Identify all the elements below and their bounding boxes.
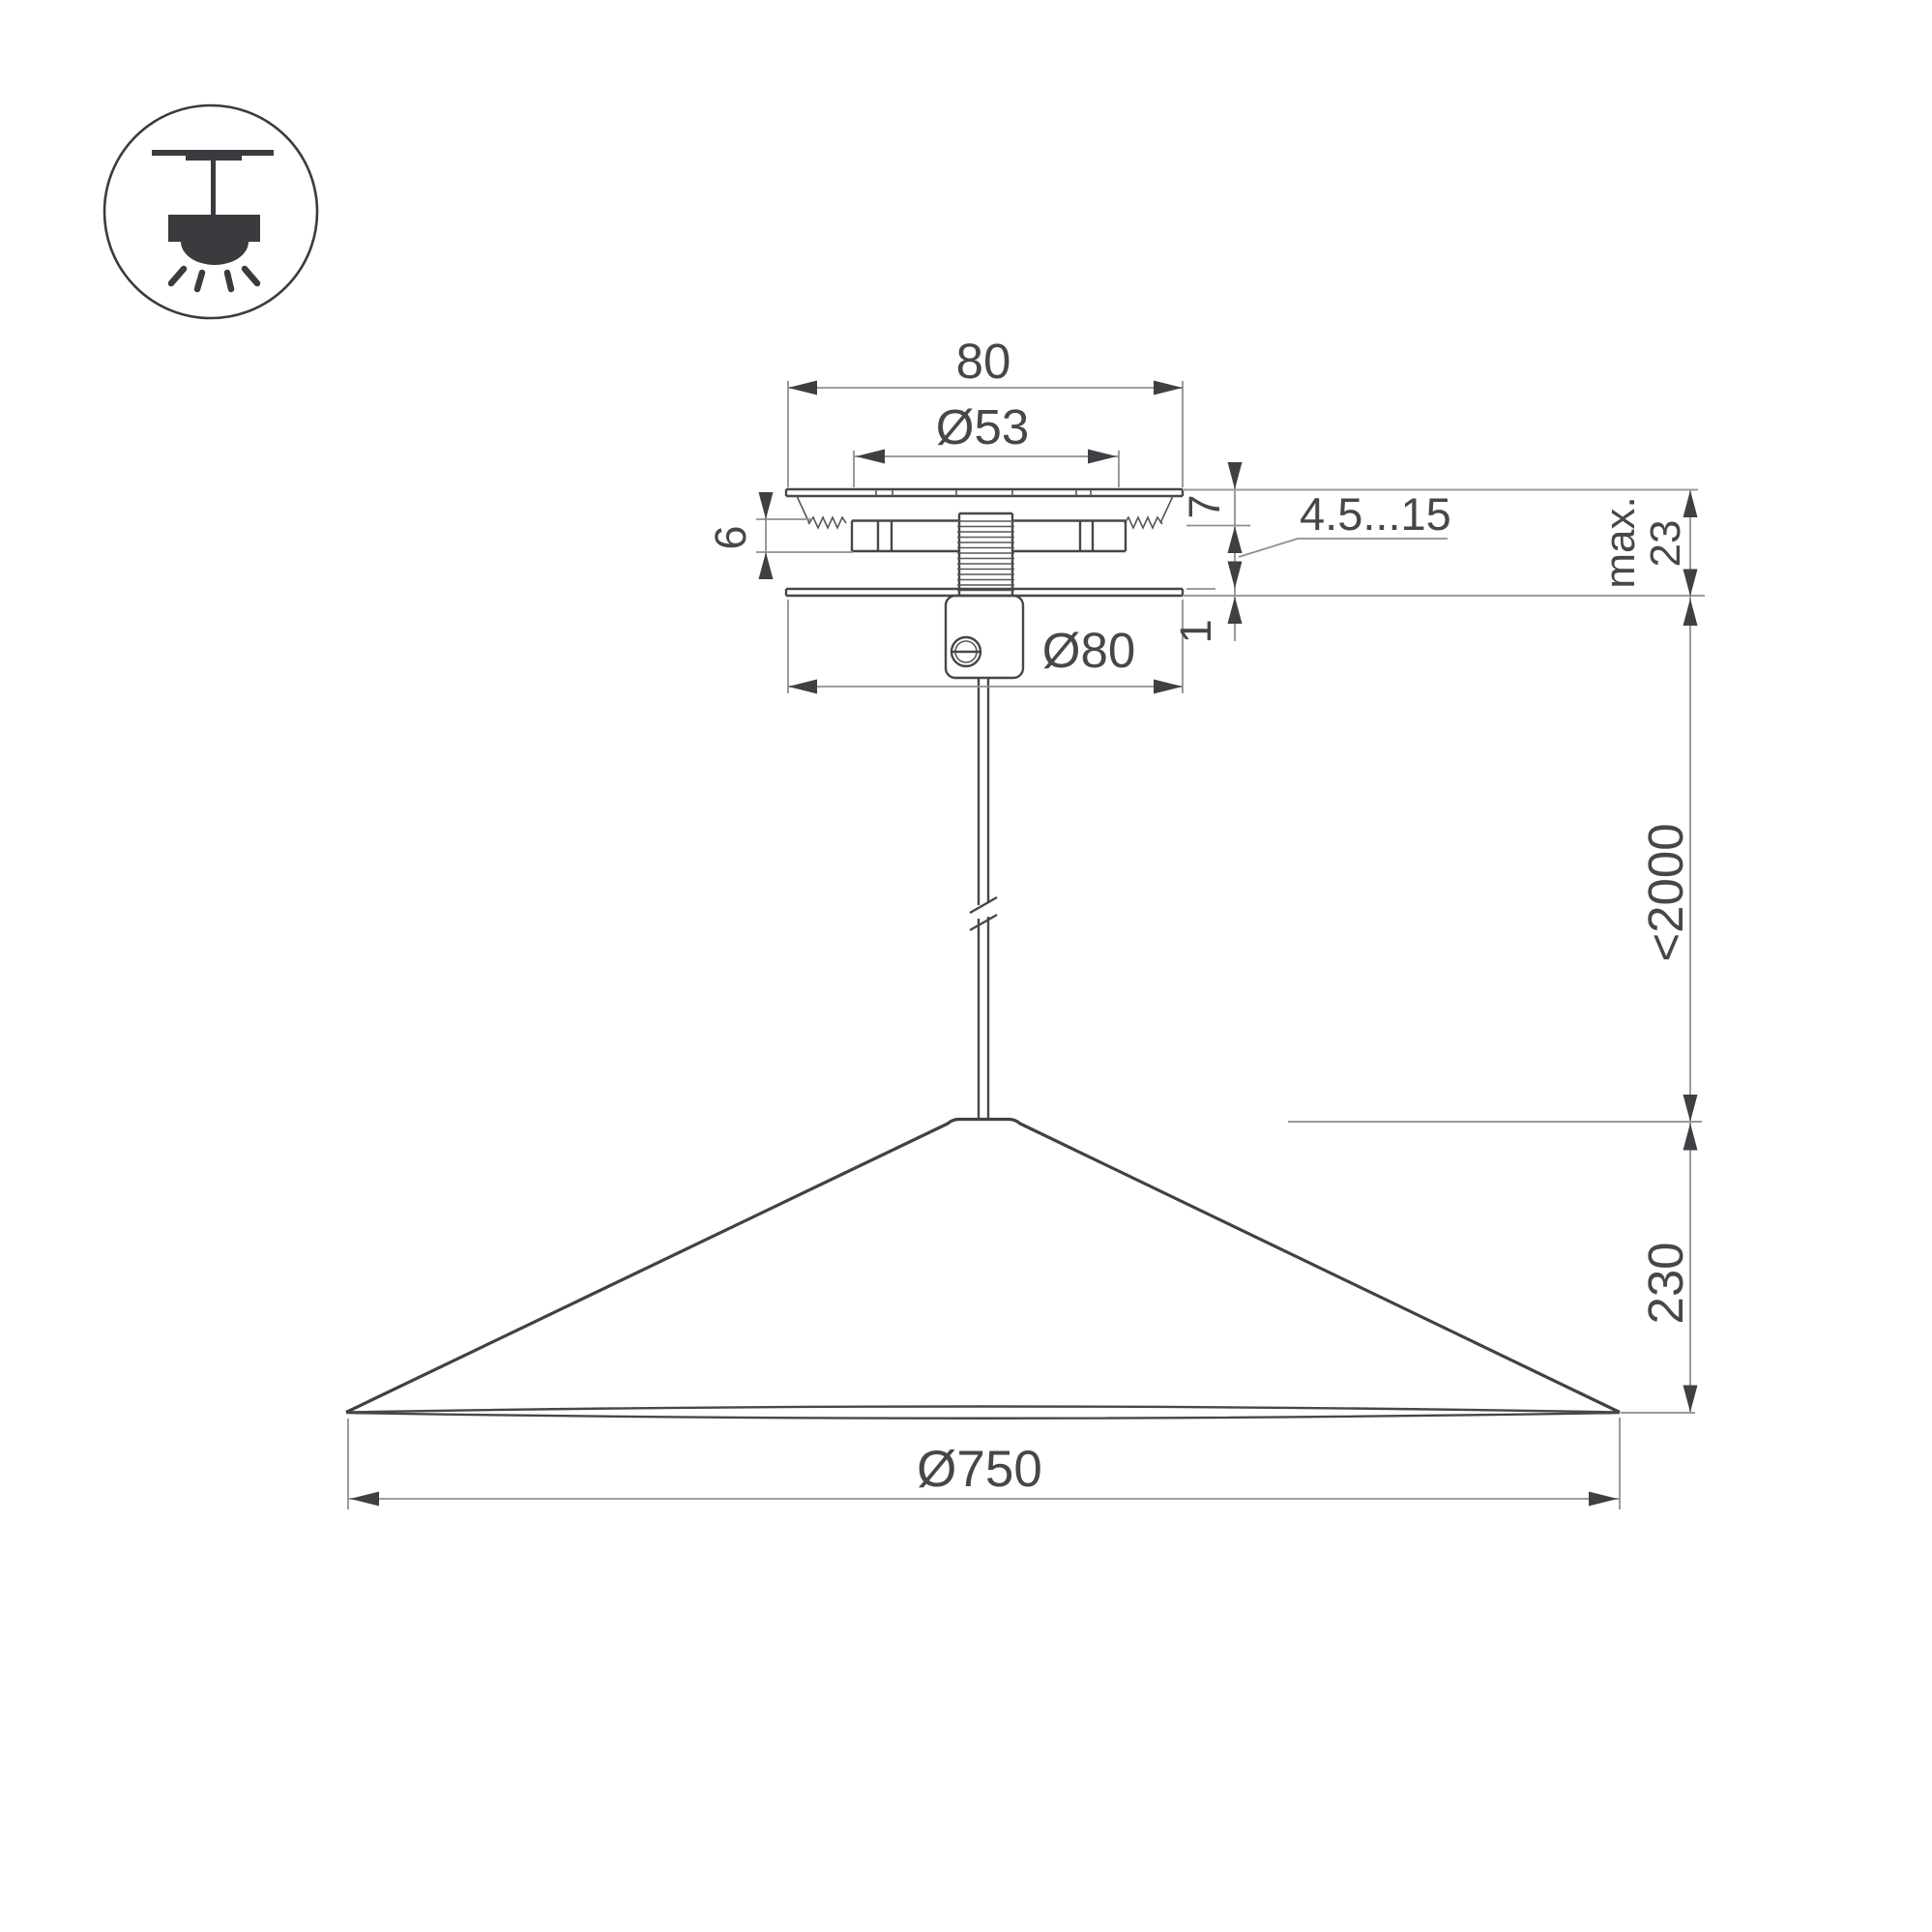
arrowhead — [1683, 599, 1698, 626]
dim-label-ceiling-range: 4.5...15 — [1300, 488, 1451, 540]
dim-label-suspension-length: <2000 — [1638, 823, 1693, 961]
arrowhead — [788, 680, 817, 694]
dim-range-leader — [1239, 539, 1448, 557]
icon-light-rays — [171, 269, 257, 289]
spring-zigzag-right — [1125, 517, 1162, 528]
dim-label-canopy-diameter: Ø80 — [1042, 623, 1135, 678]
dim-label-max-value: 23 — [1642, 520, 1689, 568]
reference-lines-right — [1183, 490, 1705, 1414]
icon-light-dome — [181, 242, 249, 265]
technical-drawing-canvas: 80 Ø53 Ø80 Ø750 4.5...15 7 6 1 max. 23 <… — [0, 0, 1932, 1932]
shade-cone-outline — [346, 1120, 1620, 1413]
arrowhead — [1228, 526, 1243, 553]
shade-rim-front-edge — [346, 1413, 1620, 1419]
arrowhead — [1683, 1386, 1698, 1413]
dimension-labels: 80 Ø53 Ø80 Ø750 4.5...15 7 6 1 max. 23 <… — [706, 334, 1693, 1498]
arrowhead — [350, 1492, 379, 1507]
arrowhead — [759, 552, 774, 579]
dim-label-max: max. — [1596, 496, 1644, 588]
dim-label-plate-height: 7 — [1180, 494, 1229, 518]
arrowhead — [1683, 1095, 1698, 1122]
pendant-ceiling-light-icon — [104, 105, 317, 318]
arrowhead — [788, 381, 817, 395]
icon-mount-tab — [186, 156, 242, 161]
rod-thread-ridges — [957, 521, 1014, 591]
dim-label-shade-height: 230 — [1638, 1242, 1693, 1324]
canopy-top-plate — [786, 489, 1183, 496]
cord-break-symbol — [970, 897, 997, 930]
dim-label-shade-diameter: Ø750 — [917, 1441, 1042, 1498]
dim-53-lines — [854, 451, 1119, 487]
dim-label-hole-diameter: Ø53 — [936, 399, 1029, 454]
icon-lamp-body — [168, 215, 260, 242]
arrowhead — [1154, 680, 1183, 694]
arrowhead — [1683, 490, 1698, 517]
lamp-shade-cone — [346, 1120, 1620, 1419]
suspension-cord — [970, 678, 997, 1119]
cord-lines — [979, 678, 988, 1119]
spring-zigzag-left — [808, 517, 846, 528]
clamp-bar — [852, 521, 1126, 552]
pendant-lamp-drawing: 80 Ø53 Ø80 Ø750 4.5...15 7 6 1 max. 23 <… — [0, 0, 1932, 1932]
dimension-lines — [348, 381, 1705, 1510]
icon-ceiling-bar — [152, 150, 274, 156]
spring-arms — [797, 496, 1173, 523]
arrowhead — [1228, 562, 1243, 589]
arrowhead — [1683, 570, 1698, 597]
arrowhead — [1683, 1124, 1698, 1151]
dim-6-lines — [756, 492, 853, 579]
arrowhead — [1589, 1492, 1618, 1507]
arrowhead — [1228, 462, 1243, 489]
dim-label-clamp-height: 6 — [706, 525, 755, 549]
arrowhead — [1154, 381, 1183, 395]
icon-stem — [211, 161, 216, 215]
dim-label-cover-thickness: 1 — [1171, 619, 1220, 643]
arrowhead — [759, 492, 774, 519]
shade-rim-back-edge — [346, 1407, 1620, 1413]
arrowhead — [1228, 597, 1243, 624]
arrowhead — [1088, 450, 1117, 464]
cord-grip-box — [946, 596, 1023, 678]
arrowhead — [856, 450, 885, 464]
dim-label-top-width: 80 — [956, 334, 1011, 389]
